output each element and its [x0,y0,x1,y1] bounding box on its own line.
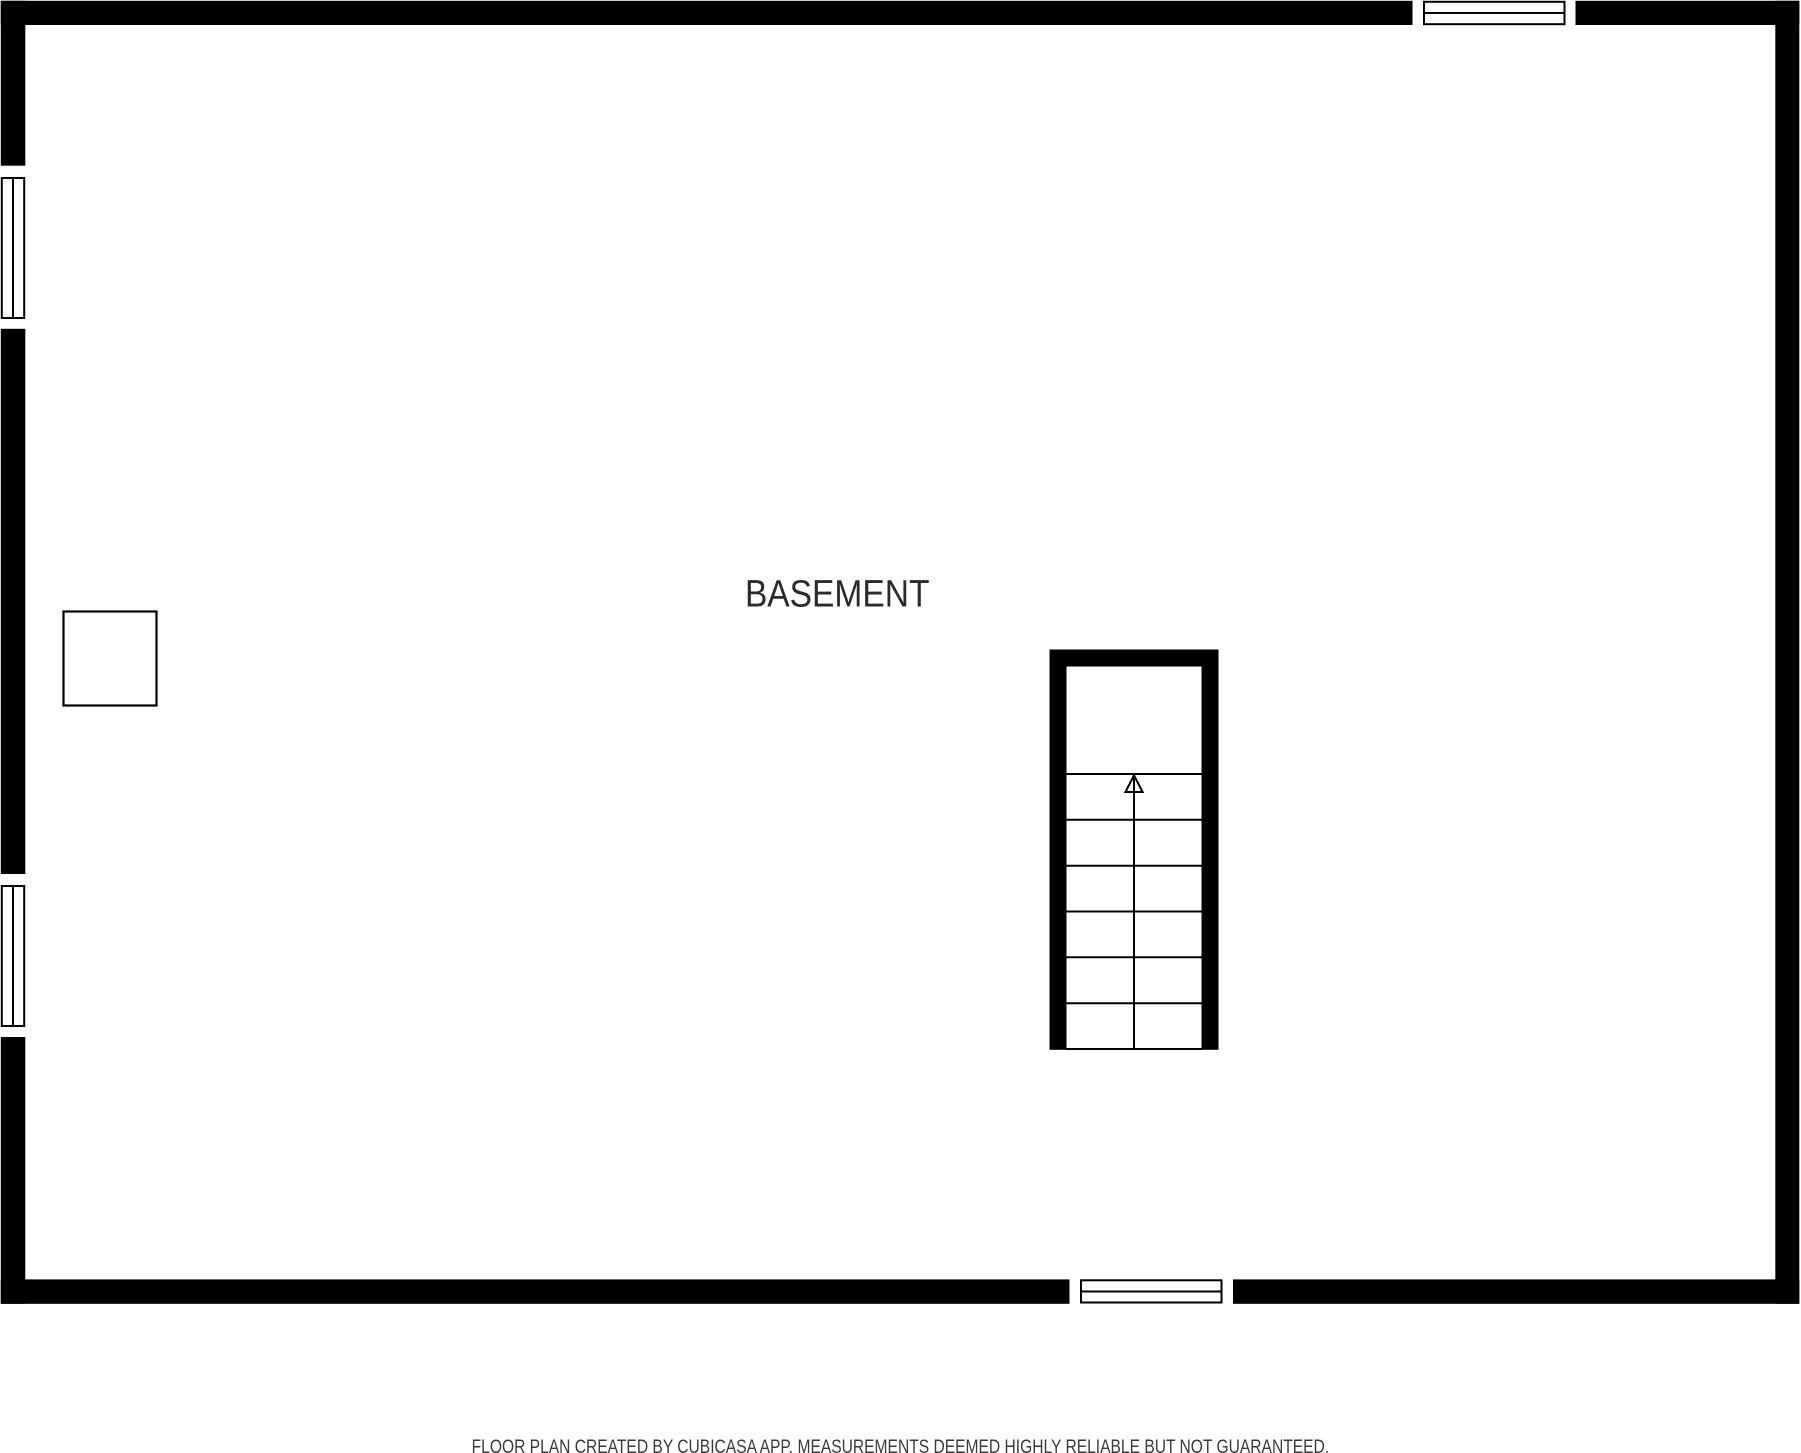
svg-text:FLOOR PLAN CREATED BY CUBICASA: FLOOR PLAN CREATED BY CUBICASA APP. MEAS… [472,1437,1330,1453]
svg-text:BASEMENT: BASEMENT [745,573,930,615]
